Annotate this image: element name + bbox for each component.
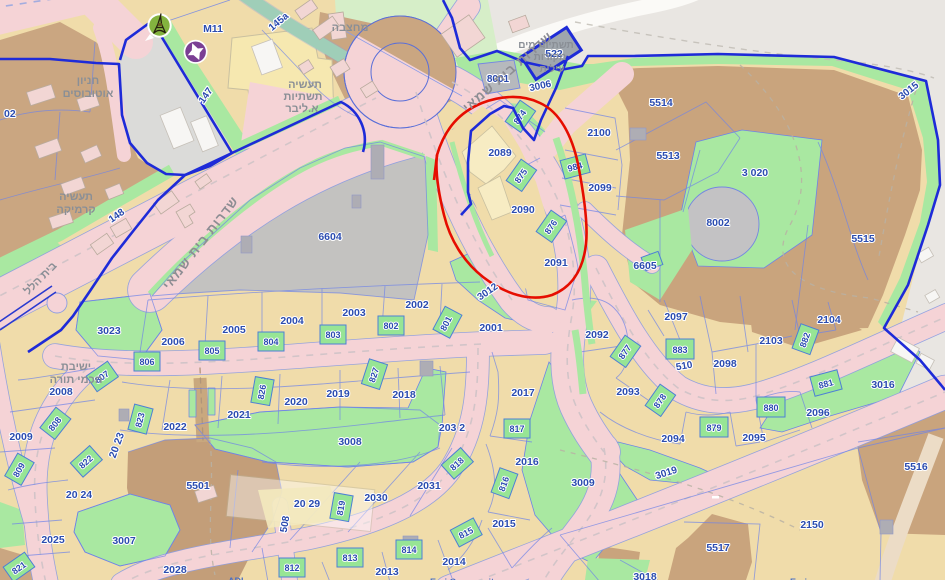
svg-text:5515: 5515 bbox=[851, 233, 875, 245]
svg-text:812: 812 bbox=[284, 563, 299, 573]
svg-text:חניון: חניון bbox=[77, 75, 99, 87]
svg-text:2031: 2031 bbox=[417, 480, 441, 492]
svg-text:817: 817 bbox=[509, 424, 524, 434]
svg-text:3007: 3007 bbox=[112, 535, 136, 547]
svg-text:מחצבה: מחצבה bbox=[332, 22, 369, 34]
svg-text:8002: 8002 bbox=[706, 217, 730, 229]
svg-text:814: 814 bbox=[401, 545, 416, 555]
svg-text:עילית: עילית bbox=[540, 63, 565, 75]
svg-text:6604: 6604 bbox=[318, 231, 342, 243]
svg-text:2008: 2008 bbox=[49, 386, 73, 398]
svg-text:חכמי תורה: חכמי תורה bbox=[50, 374, 103, 386]
svg-text:5514: 5514 bbox=[649, 97, 673, 109]
svg-text:2015: 2015 bbox=[492, 518, 516, 530]
svg-text:2006: 2006 bbox=[161, 336, 185, 348]
svg-text:2020: 2020 bbox=[284, 396, 308, 408]
svg-text:3016: 3016 bbox=[871, 379, 895, 391]
svg-text:תעשיה: תעשיה bbox=[288, 79, 322, 91]
svg-text:תשתיות: תשתיות bbox=[284, 91, 323, 103]
svg-text:2094: 2094 bbox=[661, 433, 685, 445]
svg-text:5516: 5516 bbox=[904, 461, 928, 473]
svg-text:2021: 2021 bbox=[227, 409, 251, 421]
svg-text:20 24: 20 24 bbox=[66, 489, 92, 501]
svg-text:802: 802 bbox=[383, 321, 398, 331]
svg-text:2095: 2095 bbox=[742, 432, 766, 444]
svg-text:2091: 2091 bbox=[544, 257, 568, 269]
svg-text:2019: 2019 bbox=[326, 388, 350, 400]
svg-text:M11: M11 bbox=[203, 23, 223, 35]
svg-text:5501: 5501 bbox=[186, 480, 210, 492]
svg-text:2016: 2016 bbox=[515, 456, 539, 468]
svg-text:3008: 3008 bbox=[338, 436, 362, 448]
svg-text:2018: 2018 bbox=[392, 389, 416, 401]
svg-text:ישיבת: ישיבת bbox=[61, 361, 91, 373]
svg-text:2097: 2097 bbox=[664, 311, 688, 323]
svg-text:813: 813 bbox=[342, 553, 357, 563]
svg-text:א.ליבר: א.ליבר bbox=[285, 102, 319, 115]
svg-text:2025: 2025 bbox=[41, 534, 65, 546]
svg-text:5513: 5513 bbox=[656, 150, 680, 162]
svg-text:2005: 2005 bbox=[222, 324, 246, 336]
svg-text:קרמיקה: קרמיקה bbox=[56, 204, 95, 216]
svg-text:880: 880 bbox=[763, 403, 778, 413]
svg-text:2017: 2017 bbox=[511, 387, 535, 399]
svg-text:6605: 6605 bbox=[633, 260, 657, 272]
svg-text:ADI: ADI bbox=[228, 576, 244, 580]
svg-text:2090: 2090 bbox=[511, 204, 535, 216]
svg-text:2028: 2028 bbox=[163, 564, 187, 576]
svg-text:5517: 5517 bbox=[706, 542, 730, 554]
svg-text:2014: 2014 bbox=[442, 556, 466, 568]
svg-text:2009: 2009 bbox=[9, 431, 33, 443]
svg-text:2022: 2022 bbox=[163, 421, 187, 433]
svg-text:805: 805 bbox=[204, 346, 219, 356]
svg-text:2150: 2150 bbox=[800, 519, 824, 531]
svg-text:02: 02 bbox=[4, 108, 16, 120]
svg-text:20 29: 20 29 bbox=[294, 498, 320, 510]
svg-text:תעשיה: תעשיה bbox=[59, 191, 93, 203]
svg-text:2013: 2013 bbox=[375, 566, 399, 578]
svg-text:2099: 2099 bbox=[588, 182, 612, 194]
svg-text:2004: 2004 bbox=[280, 315, 304, 327]
svg-text:2030: 2030 bbox=[364, 492, 388, 504]
svg-text:2001: 2001 bbox=[479, 322, 503, 334]
svg-text:803: 803 bbox=[325, 330, 340, 340]
svg-text:2003: 2003 bbox=[342, 307, 366, 319]
svg-text:804: 804 bbox=[263, 337, 278, 347]
svg-text:3023: 3023 bbox=[97, 325, 121, 337]
svg-text:2104: 2104 bbox=[817, 314, 841, 326]
svg-text:2103: 2103 bbox=[759, 335, 783, 347]
svg-text:2002: 2002 bbox=[405, 299, 429, 311]
svg-text:2098: 2098 bbox=[713, 358, 737, 370]
svg-text:2092: 2092 bbox=[585, 329, 609, 341]
svg-text:2100: 2100 bbox=[587, 127, 611, 139]
svg-text:879: 879 bbox=[706, 423, 721, 433]
svg-text:883: 883 bbox=[672, 345, 687, 355]
svg-text:2089: 2089 bbox=[488, 147, 512, 159]
svg-text:2096: 2096 bbox=[806, 407, 830, 419]
svg-text:203 2: 203 2 bbox=[439, 422, 465, 434]
svg-text:3 020: 3 020 bbox=[742, 167, 768, 179]
svg-text:806: 806 bbox=[139, 357, 154, 367]
svg-text:3009: 3009 bbox=[571, 477, 595, 489]
svg-text:אוטובוסים: אוטובוסים bbox=[63, 88, 114, 100]
svg-text:2093: 2093 bbox=[616, 386, 640, 398]
